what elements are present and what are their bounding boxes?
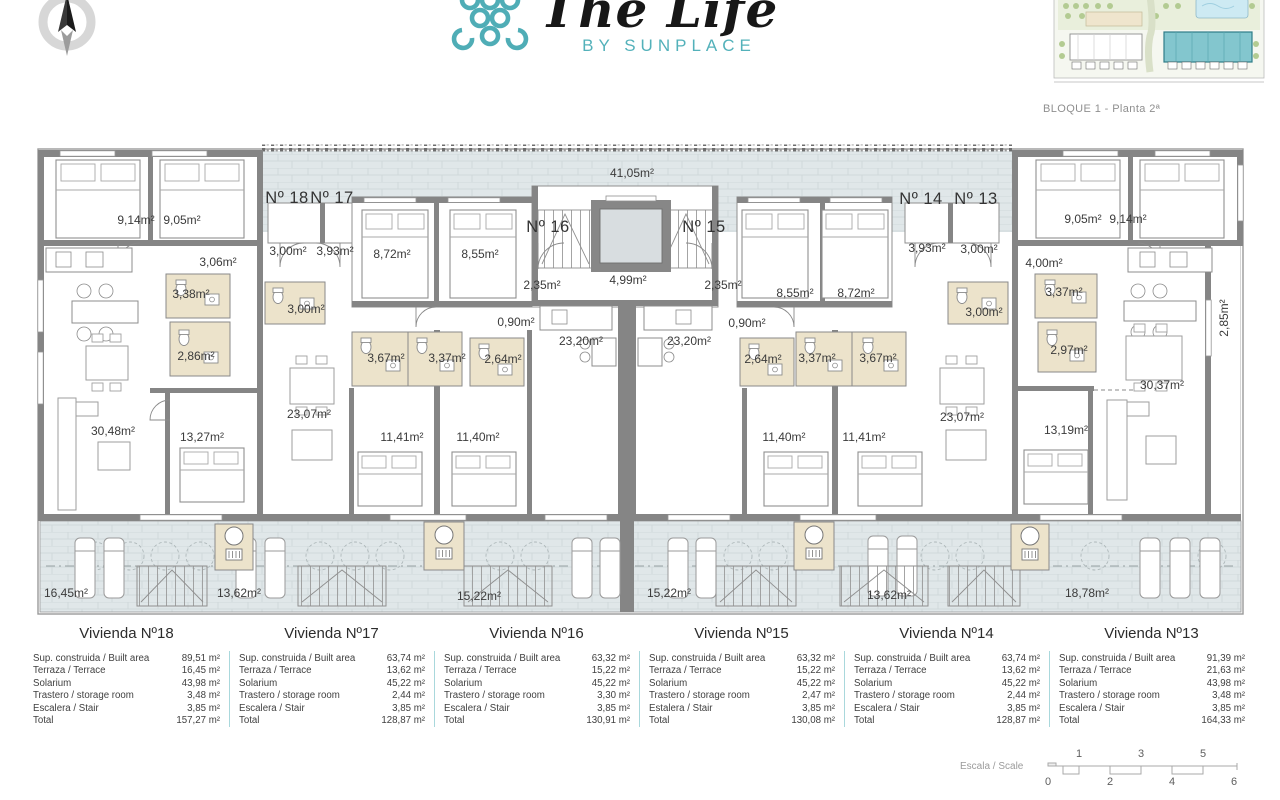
unit-title: Vivienda Nº13 bbox=[1058, 625, 1245, 642]
room-area-label: 3,93m² bbox=[908, 241, 945, 255]
room-area-label: 9,14m² bbox=[1109, 212, 1146, 226]
unit-table-row: Trastero / storage room3,48 m² bbox=[1059, 690, 1245, 702]
row-label: Solarium bbox=[33, 678, 71, 690]
unit-table: Vivienda Nº16Sup. construida / Built are… bbox=[434, 625, 639, 727]
row-value: 3,30 m² bbox=[597, 690, 630, 702]
unit-title: Vivienda Nº14 bbox=[853, 625, 1040, 642]
unit-number-label: Nº 13 bbox=[954, 190, 997, 208]
unit-number-label: Nº 18 bbox=[265, 189, 308, 207]
unit-number-label: Nº 16 bbox=[526, 218, 569, 236]
unit-table-row: Sup. construida / Built area63,32 m² bbox=[649, 653, 835, 665]
unit-table-row: Escalera / Stair3,85 m² bbox=[33, 703, 220, 715]
row-label: Solarium bbox=[1059, 678, 1097, 690]
row-value: 164,33 m² bbox=[1201, 715, 1245, 727]
row-value: 43,98 m² bbox=[182, 678, 220, 690]
unit-table-row: Solarium43,98 m² bbox=[1059, 678, 1245, 690]
room-area-label: 13,19m² bbox=[1044, 423, 1088, 437]
scale-bar: Escala / Scale 1350246 bbox=[960, 748, 1270, 798]
row-label: Solarium bbox=[444, 678, 482, 690]
row-label: Terraza / Terrace bbox=[649, 665, 722, 677]
logo-mark-icon bbox=[440, 0, 540, 62]
room-area-label: 15,22m² bbox=[647, 586, 691, 600]
row-label: Trastero / storage room bbox=[239, 690, 340, 702]
site-plan-caption: BLOQUE 1 - Planta 2ª bbox=[1043, 103, 1160, 115]
row-label: Total bbox=[649, 715, 669, 727]
room-area-label: 9,05m² bbox=[1064, 212, 1101, 226]
room-area-label: 11,41m² bbox=[380, 430, 423, 444]
room-area-label: 3,93m² bbox=[316, 244, 353, 258]
row-label: Total bbox=[444, 715, 464, 727]
scale-tick: 1 bbox=[1076, 748, 1082, 760]
room-area-label: 23,07m² bbox=[940, 410, 984, 424]
row-label: Solarium bbox=[239, 678, 277, 690]
room-area-label: 23,20m² bbox=[667, 334, 711, 348]
row-value: 45,22 m² bbox=[1002, 678, 1040, 690]
row-value: 45,22 m² bbox=[387, 678, 425, 690]
compass-icon bbox=[12, 0, 122, 80]
row-label: Terraza / Terrace bbox=[1059, 665, 1132, 677]
unit-table-row: Sup. construida / Built area89,51 m² bbox=[33, 653, 220, 665]
scale-tick: 2 bbox=[1107, 776, 1113, 788]
row-label: Trastero / storage room bbox=[854, 690, 955, 702]
room-area-label: 23,20m² bbox=[559, 334, 603, 348]
row-label: Trastero / storage room bbox=[33, 690, 134, 702]
unit-table-row: Escalera / Stair3,85 m² bbox=[854, 703, 1040, 715]
row-label: Total bbox=[854, 715, 874, 727]
row-value: 3,85 m² bbox=[1007, 703, 1040, 715]
row-label: Sup. construida / Built area bbox=[33, 653, 149, 665]
room-area-label: 2,64m² bbox=[744, 352, 781, 366]
unit-table-row: Escalera / Stair3,85 m² bbox=[239, 703, 425, 715]
unit-number-label: Nº 17 bbox=[310, 189, 353, 207]
row-value: 3,85 m² bbox=[187, 703, 220, 715]
room-area-label: 3,67m² bbox=[367, 351, 404, 365]
unit-table-row: Terraza / Terrace13,62 m² bbox=[239, 665, 425, 677]
unit-table-row: Terraza / Terrace13,62 m² bbox=[854, 665, 1040, 677]
room-area-label: 9,05m² bbox=[163, 213, 200, 227]
row-label: Estalera / Stair bbox=[649, 703, 713, 715]
row-label: Trastero / storage room bbox=[1059, 690, 1160, 702]
room-area-label: 3,67m² bbox=[859, 351, 896, 365]
unit-table: Vivienda Nº18Sup. construida / Built are… bbox=[24, 625, 229, 727]
unit-table-row: Trastero / storage room2,44 m² bbox=[854, 690, 1040, 702]
row-value: 63,74 m² bbox=[1002, 653, 1040, 665]
unit-table-row: Solarium45,22 m² bbox=[444, 678, 630, 690]
room-area-label: 4,00m² bbox=[1025, 256, 1062, 270]
row-label: Terraza / Terrace bbox=[33, 665, 106, 677]
row-label: Escalera / Stair bbox=[854, 703, 920, 715]
room-area-label: 3,00m² bbox=[965, 305, 1002, 319]
unit-title: Vivienda Nº15 bbox=[648, 625, 835, 642]
unit-table-row: Terraza / Terrace21,63 m² bbox=[1059, 665, 1245, 677]
unit-number-label: Nº 14 bbox=[899, 190, 942, 208]
room-area-label: 3,37m² bbox=[798, 351, 835, 365]
room-area-label: 0,90m² bbox=[728, 316, 765, 330]
row-value: 3,85 m² bbox=[1212, 703, 1245, 715]
row-label: Total bbox=[239, 715, 259, 727]
room-area-label: 2,85m² bbox=[1217, 299, 1231, 336]
room-area-label: 2,35m² bbox=[704, 278, 741, 292]
unit-table-row: Solarium45,22 m² bbox=[649, 678, 835, 690]
row-value: 45,22 m² bbox=[797, 678, 835, 690]
unit-table-row: Total164,33 m² bbox=[1059, 715, 1245, 727]
room-area-label: 13,27m² bbox=[180, 430, 224, 444]
room-area-label: 8,55m² bbox=[461, 247, 498, 261]
row-value: 130,91 m² bbox=[586, 715, 630, 727]
row-value: 63,32 m² bbox=[797, 653, 835, 665]
row-value: 16,45 m² bbox=[182, 665, 220, 677]
room-area-label: 3,38m² bbox=[172, 287, 209, 301]
room-area-label: 11,40m² bbox=[762, 430, 805, 444]
room-area-label: 30,37m² bbox=[1140, 378, 1184, 392]
room-area-label: 4,99m² bbox=[609, 273, 646, 287]
page: 41,05m²9,14m²9,05m²3,06m²3,38m²2,86m²3,0… bbox=[0, 0, 1280, 800]
row-label: Escalera / Stair bbox=[1059, 703, 1125, 715]
site-plan-thumbnail bbox=[1046, 0, 1271, 92]
room-area-label: 3,37m² bbox=[428, 351, 465, 365]
room-area-label: 3,00m² bbox=[287, 302, 324, 316]
row-value: 89,51 m² bbox=[182, 653, 220, 665]
scale-tick: 4 bbox=[1169, 776, 1175, 788]
row-label: Terraza / Terrace bbox=[444, 665, 517, 677]
unit-table-row: Escalera / Stair3,85 m² bbox=[1059, 703, 1245, 715]
room-area-label: 11,41m² bbox=[842, 430, 885, 444]
logo-subtitle: BY SUNPLACE bbox=[558, 36, 780, 56]
unit-table: Vivienda Nº17Sup. construida / Built are… bbox=[229, 625, 434, 727]
room-area-label: 2,86m² bbox=[177, 349, 214, 363]
unit-table-row: Terraza / Terrace16,45 m² bbox=[33, 665, 220, 677]
row-value: 13,62 m² bbox=[387, 665, 425, 677]
room-area-label: 3,00m² bbox=[960, 242, 997, 256]
row-label: Sup. construida / Built area bbox=[854, 653, 970, 665]
unit-table-row: Terraza / Terrace15,22 m² bbox=[649, 665, 835, 677]
unit-table-row: Sup. construida / Built area63,74 m² bbox=[239, 653, 425, 665]
room-area-label: 0,90m² bbox=[497, 315, 534, 329]
row-label: Sup. construida / Built area bbox=[649, 653, 765, 665]
unit-table-row: Terraza / Terrace15,22 m² bbox=[444, 665, 630, 677]
row-value: 13,62 m² bbox=[1002, 665, 1040, 677]
row-label: Escalera / Stair bbox=[444, 703, 510, 715]
row-value: 15,22 m² bbox=[797, 665, 835, 677]
scale-bar-graphic bbox=[960, 748, 1270, 798]
row-value: 2,44 m² bbox=[392, 690, 425, 702]
unit-title: Vivienda Nº18 bbox=[33, 625, 220, 642]
row-value: 91,39 m² bbox=[1207, 653, 1245, 665]
scale-tick: 3 bbox=[1138, 748, 1144, 760]
unit-table-row: Total128,87 m² bbox=[239, 715, 425, 727]
room-area-label: 2,97m² bbox=[1050, 343, 1087, 357]
unit-table-row: Trastero / storage room3,30 m² bbox=[444, 690, 630, 702]
row-value: 128,87 m² bbox=[381, 715, 425, 727]
unit-number-label: Nº 15 bbox=[682, 218, 725, 236]
scale-tick: 5 bbox=[1200, 748, 1206, 760]
row-label: Total bbox=[33, 715, 53, 727]
room-area-label: 2,35m² bbox=[523, 278, 560, 292]
row-value: 63,32 m² bbox=[592, 653, 630, 665]
unit-table-row: Estalera / Stair3,85 m² bbox=[649, 703, 835, 715]
unit-table-row: Escalera / Stair3,85 m² bbox=[444, 703, 630, 715]
scale-tick: 6 bbox=[1231, 776, 1237, 788]
row-label: Escalera / Stair bbox=[33, 703, 99, 715]
logo: The Life BY SUNPLACE bbox=[440, 0, 780, 70]
room-area-label: 13,62m² bbox=[217, 586, 261, 600]
row-label: Solarium bbox=[649, 678, 687, 690]
room-area-label: 8,72m² bbox=[373, 247, 410, 261]
row-label: Total bbox=[1059, 715, 1079, 727]
room-area-label: 3,00m² bbox=[269, 244, 306, 258]
row-label: Solarium bbox=[854, 678, 892, 690]
unit-tables: Vivienda Nº18Sup. construida / Built are… bbox=[24, 625, 1256, 727]
room-area-label: 11,40m² bbox=[456, 430, 499, 444]
room-area-label: 30,48m² bbox=[91, 424, 135, 438]
unit-table-row: Sup. construida / Built area63,32 m² bbox=[444, 653, 630, 665]
unit-table-row: Sup. construida / Built area63,74 m² bbox=[854, 653, 1040, 665]
room-area-label: 3,37m² bbox=[1045, 285, 1082, 299]
row-label: Sup. construida / Built area bbox=[239, 653, 355, 665]
unit-title: Vivienda Nº16 bbox=[443, 625, 630, 642]
room-area-label: 3,06m² bbox=[199, 255, 236, 269]
room-area-label: 8,55m² bbox=[776, 286, 813, 300]
unit-title: Vivienda Nº17 bbox=[238, 625, 425, 642]
row-value: 3,85 m² bbox=[392, 703, 425, 715]
row-value: 21,63 m² bbox=[1207, 665, 1245, 677]
unit-table-row: Trastero / storage room3,48 m² bbox=[33, 690, 220, 702]
row-value: 3,85 m² bbox=[802, 703, 835, 715]
room-area-label: 23,07m² bbox=[287, 407, 331, 421]
room-area-label: 9,14m² bbox=[117, 213, 154, 227]
room-area-label: 16,45m² bbox=[44, 586, 88, 600]
row-label: Trastero / storage room bbox=[649, 690, 750, 702]
unit-table-row: Total157,27 m² bbox=[33, 715, 220, 727]
row-value: 43,98 m² bbox=[1207, 678, 1245, 690]
unit-table-row: Trastero / storage room2,44 m² bbox=[239, 690, 425, 702]
unit-table: Vivienda Nº14Sup. construida / Built are… bbox=[844, 625, 1049, 727]
row-label: Terraza / Terrace bbox=[854, 665, 927, 677]
row-value: 2,44 m² bbox=[1007, 690, 1040, 702]
scale-tick: 0 bbox=[1045, 776, 1051, 788]
unit-table: Vivienda Nº15Sup. construida / Built are… bbox=[639, 625, 844, 727]
unit-table-row: Total128,87 m² bbox=[854, 715, 1040, 727]
row-value: 3,85 m² bbox=[597, 703, 630, 715]
row-value: 45,22 m² bbox=[592, 678, 630, 690]
unit-table-row: Sup. construida / Built area91,39 m² bbox=[1059, 653, 1245, 665]
unit-table-row: Solarium43,98 m² bbox=[33, 678, 220, 690]
row-value: 157,27 m² bbox=[176, 715, 220, 727]
room-area-label: 8,72m² bbox=[837, 286, 874, 300]
row-label: Trastero / storage room bbox=[444, 690, 545, 702]
logo-title: The Life bbox=[540, 0, 780, 39]
room-area-label: 13,62m² bbox=[867, 588, 911, 602]
unit-table-row: Total130,08 m² bbox=[649, 715, 835, 727]
row-value: 128,87 m² bbox=[996, 715, 1040, 727]
unit-table-row: Solarium45,22 m² bbox=[239, 678, 425, 690]
row-label: Sup. construida / Built area bbox=[1059, 653, 1175, 665]
row-label: Escalera / Stair bbox=[239, 703, 305, 715]
room-area-label: 15,22m² bbox=[457, 589, 501, 603]
row-value: 3,48 m² bbox=[1212, 690, 1245, 702]
row-label: Terraza / Terrace bbox=[239, 665, 312, 677]
row-value: 63,74 m² bbox=[387, 653, 425, 665]
unit-table: Vivienda Nº13Sup. construida / Built are… bbox=[1049, 625, 1254, 727]
room-area-label: 41,05m² bbox=[610, 166, 654, 180]
unit-table-row: Total130,91 m² bbox=[444, 715, 630, 727]
row-value: 130,08 m² bbox=[791, 715, 835, 727]
room-area-label: 2,64m² bbox=[484, 352, 521, 366]
row-label: Sup. construida / Built area bbox=[444, 653, 560, 665]
room-area-label: 18,78m² bbox=[1065, 586, 1109, 600]
row-value: 2,47 m² bbox=[802, 690, 835, 702]
unit-table-row: Solarium45,22 m² bbox=[854, 678, 1040, 690]
unit-table-row: Trastero / storage room2,47 m² bbox=[649, 690, 835, 702]
row-value: 3,48 m² bbox=[187, 690, 220, 702]
row-value: 15,22 m² bbox=[592, 665, 630, 677]
